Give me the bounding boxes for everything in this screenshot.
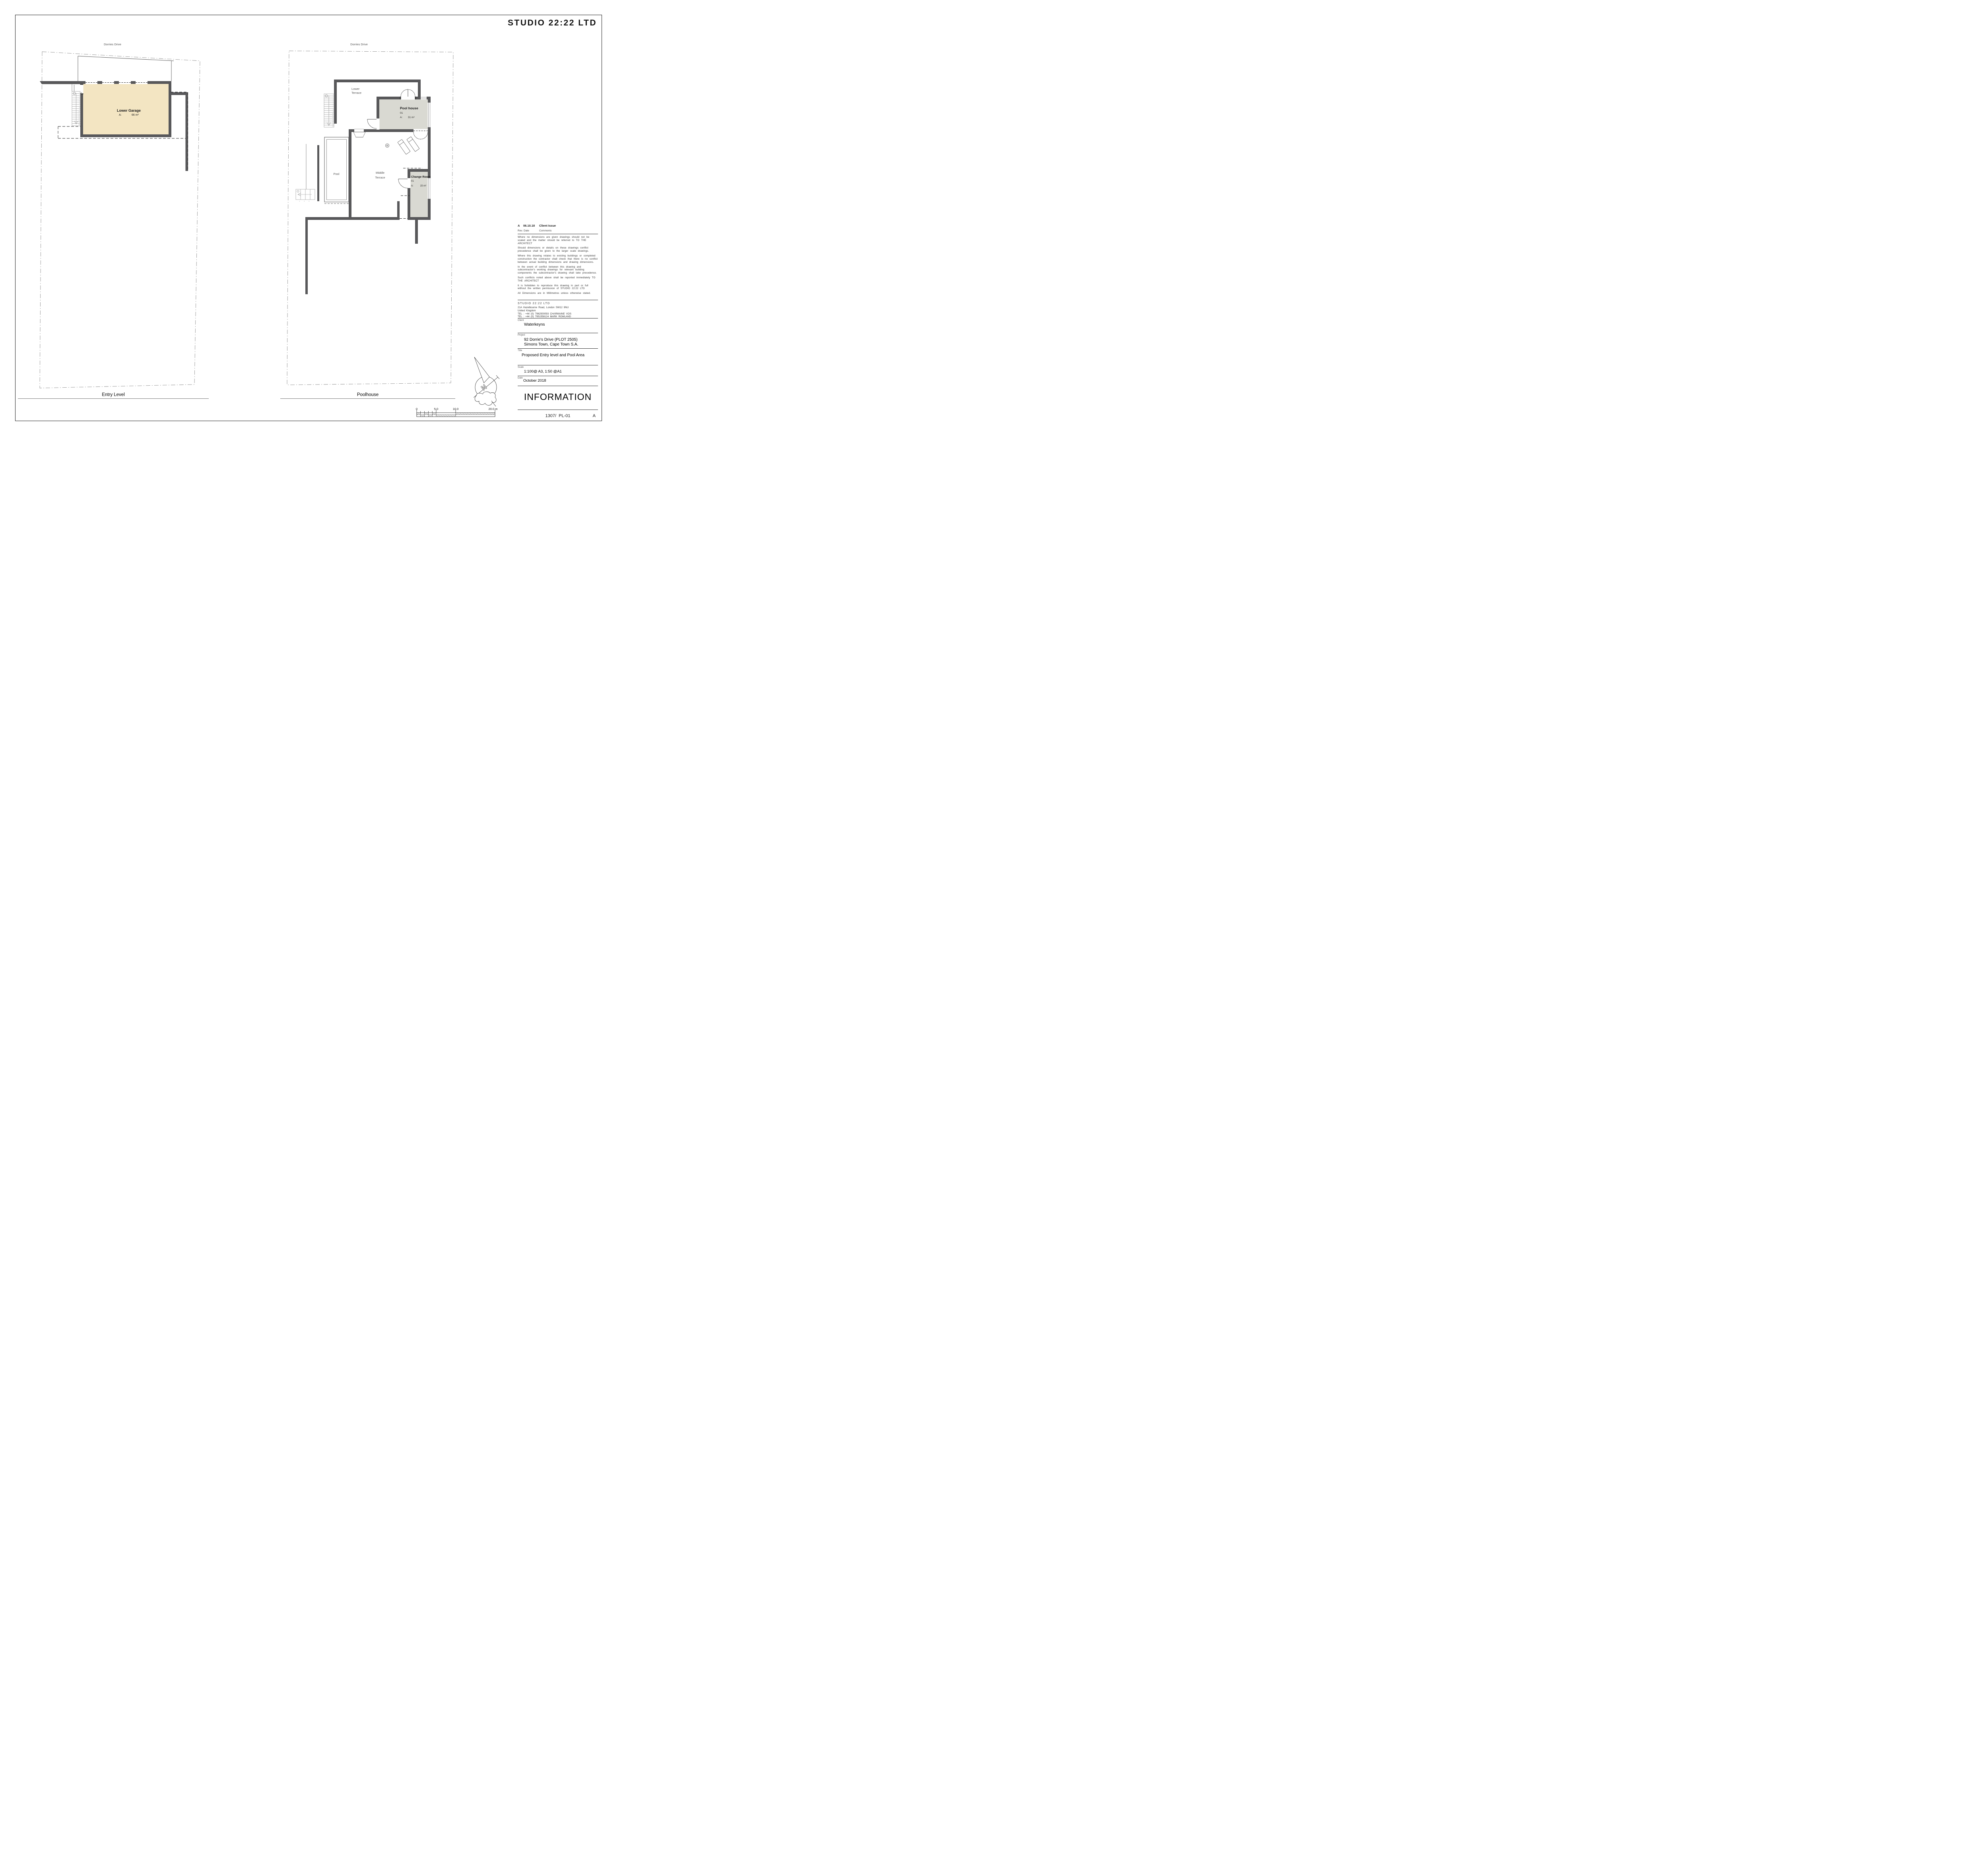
status-text: INFORMATION [518, 392, 598, 402]
change-room-name: Change Room [411, 175, 431, 179]
north-arrow: N [474, 357, 499, 406]
stair-tread-number: 11 [79, 113, 80, 115]
stair-tread-number: 14 [78, 119, 80, 121]
current-revision: A [593, 414, 596, 418]
pool-plan-title: Poolhouse [357, 392, 379, 397]
pool-house-walls [367, 89, 431, 139]
scale-bar: 0 5.0 10.0 20.0 m [416, 407, 498, 417]
stair-tread-number: 15 [78, 122, 80, 123]
revision-header: Rev. Date Comments [518, 229, 598, 232]
studio-name: STUDIO 22:22 LTD [518, 301, 598, 305]
rev-header-comments: Comments [539, 229, 551, 232]
north-letter: N [480, 383, 488, 392]
stair-tread-number: 16 [332, 125, 334, 127]
project-label: Project [518, 334, 598, 336]
pool-house-door [367, 118, 380, 130]
pool-house-window [428, 103, 431, 127]
rule [518, 410, 598, 410]
stair-tread-number: 1 [299, 200, 300, 202]
note-paragraph: Where no dimensions are given drawings s… [518, 236, 598, 245]
lower-stair: 123 [296, 189, 315, 202]
stair-tread-number: 10 [332, 113, 334, 115]
change-room-area-value: 15 m² [420, 185, 426, 187]
stair-tread-number: 2 [304, 200, 305, 202]
sun-loungers [386, 137, 419, 155]
entry-level-plan: 12345678910111213141516 Dorries Drive Lo… [40, 43, 200, 388]
notes-block: Where no dimensions are given drawings s… [518, 236, 598, 299]
entry-stair: 12345678910111213141516 [72, 91, 80, 126]
entry-plan-title: Entry Level [102, 392, 125, 397]
rule [518, 376, 598, 376]
door-opening [80, 85, 83, 93]
project-line1: 92 Dorrie's Drive (PLOT 2505) [518, 338, 604, 342]
lower-terrace-line2: Terrace [351, 91, 361, 95]
client-value: Waterkeyns [518, 322, 604, 327]
entry-left-wall-stub [40, 81, 80, 84]
change-room-number: 01 [411, 180, 414, 183]
note-paragraph: In the event of conflict between this dr… [518, 266, 598, 275]
drawing-number: 1307/ PL-01 [518, 414, 598, 418]
stair-tread-number: 15 [332, 123, 334, 125]
stair-tread-number: 14 [332, 121, 334, 123]
note-paragraph: Where this drawing relates to existing b… [518, 254, 598, 264]
revision-comment: Client Issue [539, 224, 556, 227]
studio-tel1: TEL : +44 (0) 7962500093 CHARMAINE VOS [518, 313, 598, 316]
change-room-window [428, 178, 431, 199]
rev-header-date: Date [524, 229, 539, 232]
note-paragraph: Such conflicts noted above shall be repo… [518, 276, 598, 283]
pool-side-wall [317, 145, 319, 201]
change-room-door [398, 178, 411, 188]
stair-tread-number: 10 [78, 111, 80, 113]
stair-tread-number: 13 [78, 117, 80, 119]
title-value: Proposed Entry level and Pool Area [518, 353, 602, 357]
pool-label: Pool [333, 172, 339, 176]
title-block: A 06.10.18 Client Issue Rev. Date Commen… [518, 0, 598, 434]
rev-header-rev: Rev. [518, 229, 524, 232]
lower-boundary-walls [305, 196, 418, 294]
note-paragraph: All Dimensions are in Millimetres unless… [518, 292, 598, 295]
garage-area-value: 66 m² [132, 114, 139, 116]
rule [518, 234, 598, 234]
stair-tread-number: 3 [309, 200, 309, 202]
french-doors-bottom [414, 129, 428, 140]
french-doors-top [400, 89, 416, 100]
scale-value: 1:100@ A3, 1:50 @A1 [518, 369, 604, 374]
terrace-stair: 12345678910111213141516 [324, 94, 334, 127]
stair-tread-number: 16 [78, 124, 80, 125]
rule [518, 300, 598, 300]
stair-tread-number: 11 [332, 115, 334, 116]
revision-row: A 06.10.18 Client Issue [518, 224, 598, 227]
entry-right-wall [171, 92, 188, 171]
project-line2: Simons Town, Cape Town S.A. [518, 342, 604, 347]
date-value: October 2018 [518, 379, 604, 383]
entry-street-label: Dorries Drive [104, 43, 121, 46]
pool-house-name: Pool house [400, 106, 418, 110]
studio-address2: United Kingdom [518, 309, 598, 313]
stair-tread-number: 13 [332, 119, 334, 120]
title-label: Title [518, 349, 598, 352]
middle-terrace-line2: Terrace [375, 176, 385, 179]
rule [518, 318, 598, 318]
garage-area-label: A: [119, 114, 122, 116]
middle-terrace-line1: Middle [376, 171, 384, 175]
rule [518, 365, 598, 365]
rule [518, 333, 598, 333]
stair-tread-number: 12 [78, 115, 80, 117]
stair-tread-number: 12 [332, 117, 334, 118]
pool-street-label: Dorries Drive [350, 43, 368, 46]
client-label: Client [518, 319, 598, 322]
revision-letter: A [518, 224, 523, 227]
note-paragraph: Should dimensions or details on these dr… [518, 247, 598, 253]
rule [518, 386, 598, 386]
pool [324, 137, 349, 204]
revision-date: 06.10.18 [523, 224, 539, 227]
pool-house-number: 01 [400, 112, 403, 115]
studio-address1: 21A Hazelbourne Road, London SW12 9NU [518, 306, 598, 309]
entry-plot-line [78, 56, 174, 81]
scale-20: 20.0 m [489, 407, 498, 411]
lower-terrace-line1: Lower [351, 87, 360, 91]
bottom-wall-extension [349, 129, 377, 220]
pool-house-area-label: A: [400, 116, 402, 119]
note-paragraph: It is forbidden to reproduce this drawin… [518, 284, 598, 291]
studio-block: STUDIO 22:22 LTD 21A Hazelbourne Road, L… [518, 301, 598, 318]
poolhouse-plan: 12345678910111213141516 123 [287, 43, 453, 385]
pool-house-area-value: 31 m² [408, 116, 415, 119]
change-room-area-label: A: [411, 185, 414, 187]
scale-label: Scale [518, 366, 598, 369]
right-outer-wall [428, 132, 431, 169]
plan-titles: Entry Level Poolhouse [18, 392, 455, 399]
rule [518, 348, 598, 349]
garage-name: Lower Garage [117, 109, 141, 113]
terrace-window [421, 97, 427, 100]
